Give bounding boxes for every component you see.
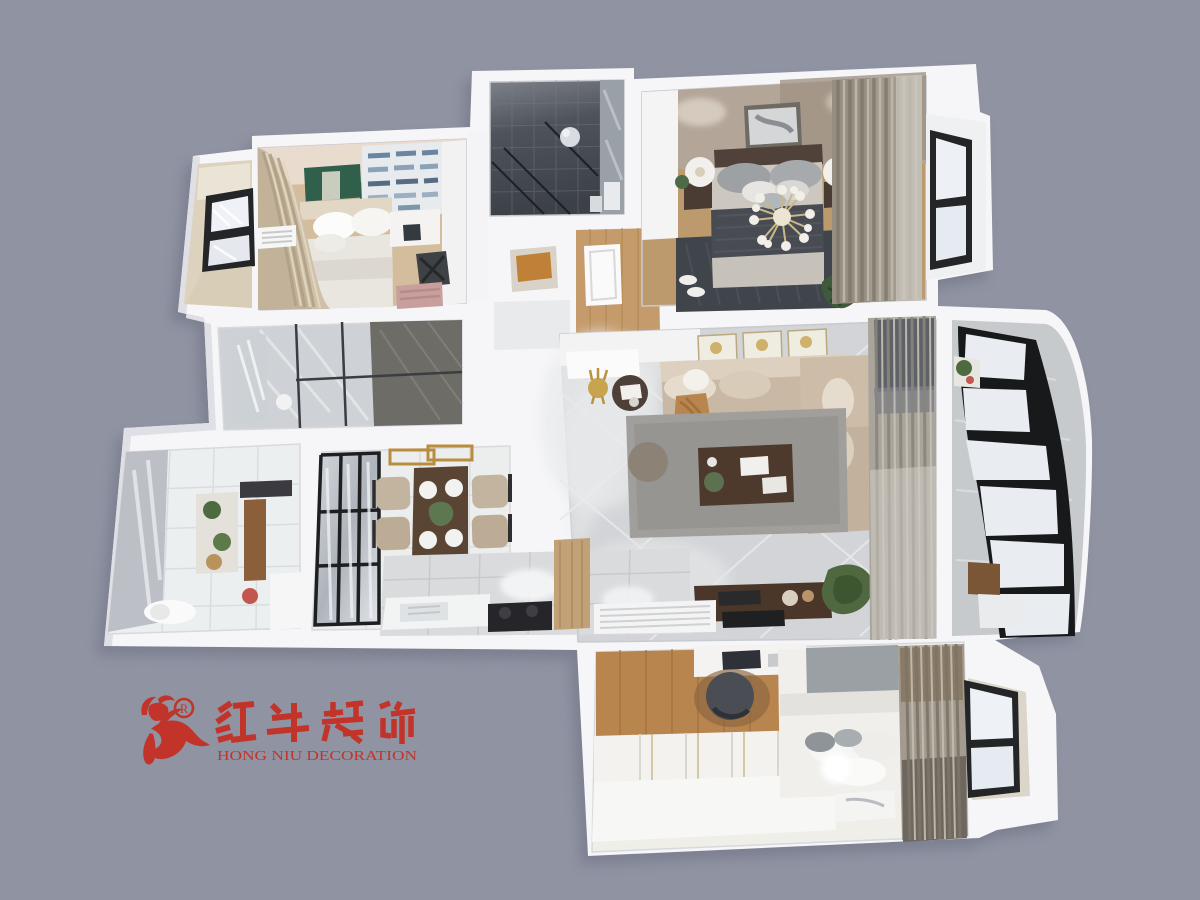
svg-text:HONG NIU DECORATION: HONG NIU DECORATION xyxy=(217,749,417,764)
svg-text:R: R xyxy=(180,702,189,716)
